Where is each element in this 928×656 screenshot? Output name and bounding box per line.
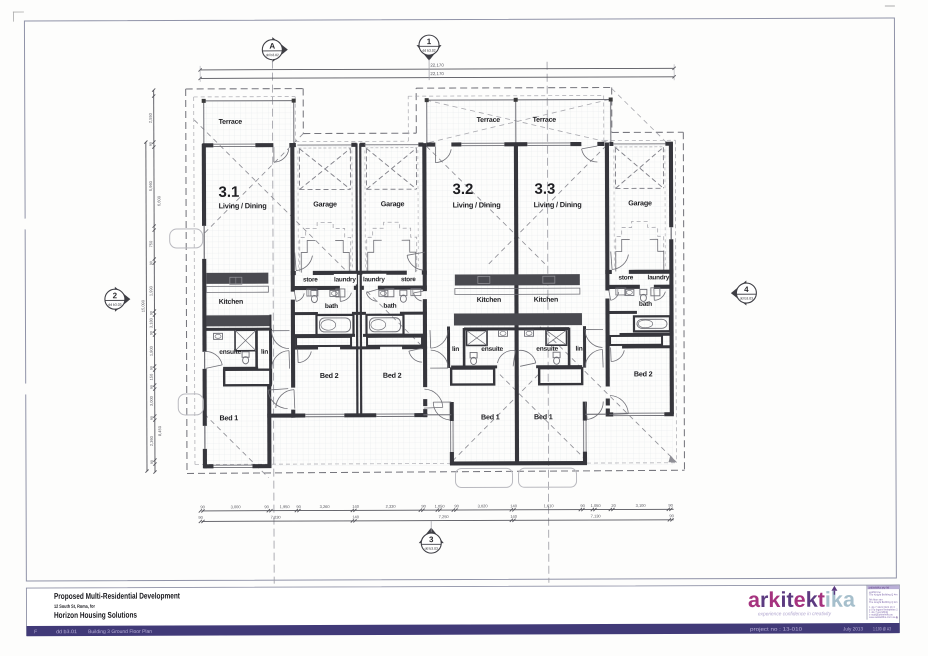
svg-text:150: 150 <box>149 373 154 380</box>
svg-text:dd b3.03: dd b3.03 <box>108 303 121 307</box>
svg-text:Bed 1: Bed 1 <box>481 412 500 421</box>
svg-text:laundry: laundry <box>334 276 356 283</box>
svg-text:lin: lin <box>576 346 583 353</box>
svg-text:Terrace: Terrace <box>477 117 501 124</box>
svg-text:140: 140 <box>352 504 359 509</box>
svg-text:www.arkitektika.com.au a: www.arkitektika.com.au a <box>869 616 898 619</box>
svg-text:store: store <box>401 276 416 283</box>
svg-text:project no : 13-010: project no : 13-010 <box>750 627 802 633</box>
svg-text:dd b3.01: dd b3.01 <box>56 629 77 635</box>
svg-text:90: 90 <box>149 261 153 265</box>
svg-text:dd b3.02: dd b3.02 <box>422 49 435 53</box>
svg-text:1,050: 1,050 <box>591 503 602 508</box>
svg-text:experience confidence in creat: experience confidence in creativity <box>758 611 831 617</box>
svg-text:90: 90 <box>580 503 585 508</box>
svg-text:A: A <box>269 42 275 51</box>
svg-text:Building 3 Ground Floor Plan: Building 3 Ground Floor Plan <box>88 629 152 635</box>
svg-text:Bed 1: Bed 1 <box>220 413 239 422</box>
svg-text:2,360: 2,360 <box>149 435 154 446</box>
svg-text:20: 20 <box>611 503 616 508</box>
svg-text:dd b3.03: dd b3.03 <box>425 547 438 551</box>
svg-text:3,260: 3,260 <box>320 504 331 509</box>
svg-text:140: 140 <box>510 503 517 508</box>
svg-text:Terrace: Terrace <box>533 117 557 124</box>
svg-text:750: 750 <box>148 240 153 247</box>
svg-text:dd b3.02: dd b3.02 <box>266 53 279 57</box>
svg-text:1,610: 1,610 <box>544 503 555 508</box>
svg-text:F: F <box>34 629 37 635</box>
svg-text:Bed 2: Bed 2 <box>634 369 653 378</box>
svg-text:90: 90 <box>421 504 426 509</box>
svg-text:1: 1 <box>427 37 432 46</box>
svg-text:90: 90 <box>264 504 269 509</box>
svg-text:15,090: 15,090 <box>140 299 145 312</box>
svg-text:Kitchen: Kitchen <box>219 299 243 306</box>
svg-text:90: 90 <box>149 311 153 315</box>
svg-text:90: 90 <box>669 513 674 518</box>
svg-text:2: 2 <box>113 291 118 300</box>
svg-text:3.1: 3.1 <box>218 184 239 201</box>
svg-text:Bed 2: Bed 2 <box>383 371 402 380</box>
svg-text:3,020: 3,020 <box>478 503 489 508</box>
svg-text:Living / Dining: Living / Dining <box>534 200 583 209</box>
svg-text:Bed 1: Bed 1 <box>534 412 553 421</box>
svg-text:90: 90 <box>150 366 154 370</box>
svg-text:140: 140 <box>510 514 517 519</box>
svg-text:bath: bath <box>383 303 396 310</box>
svg-text:90: 90 <box>668 503 673 508</box>
svg-text:July 2013: July 2013 <box>843 626 863 632</box>
svg-text:22,170: 22,170 <box>430 71 444 76</box>
svg-text:3,000: 3,000 <box>149 395 154 406</box>
svg-text:laundry: laundry <box>647 274 669 281</box>
svg-text:Bed 2: Bed 2 <box>320 371 339 380</box>
svg-text:6,600: 6,600 <box>156 195 161 206</box>
svg-text:laundry: laundry <box>363 276 385 283</box>
svg-text:2,550: 2,550 <box>148 112 153 123</box>
svg-text:arkitektika pty ltd: arkitektika pty ltd <box>868 586 889 590</box>
svg-text:7,130: 7,130 <box>591 514 602 519</box>
svg-text:1,990: 1,990 <box>148 285 153 296</box>
svg-text:90: 90 <box>149 142 153 146</box>
svg-text:Kitchen: Kitchen <box>534 297 558 304</box>
svg-text:5,960: 5,960 <box>148 180 153 191</box>
svg-text:90: 90 <box>150 416 154 420</box>
svg-text:7,250: 7,250 <box>439 514 450 519</box>
svg-text:1:100 @ A3: 1:100 @ A3 <box>873 626 891 632</box>
svg-text:3,100: 3,100 <box>636 503 647 508</box>
svg-text:7,230: 7,230 <box>271 515 282 520</box>
svg-text:store: store <box>303 277 318 284</box>
svg-text:Terrace: Terrace <box>219 119 243 126</box>
svg-text:90: 90 <box>296 504 301 509</box>
svg-text:bath: bath <box>639 301 652 308</box>
svg-text:Garage: Garage <box>628 198 652 207</box>
svg-text:lin: lin <box>261 349 268 356</box>
svg-text:3: 3 <box>429 535 434 544</box>
svg-text:1,950: 1,950 <box>280 504 291 509</box>
svg-text:90: 90 <box>150 331 154 335</box>
svg-text:dd b3.03: dd b3.03 <box>740 296 753 300</box>
svg-text:Horizon Housing Solutions: Horizon Housing Solutions <box>54 610 137 620</box>
svg-text:Garage: Garage <box>313 199 337 208</box>
svg-text:Garage: Garage <box>381 199 405 208</box>
svg-text:3,000: 3,000 <box>231 504 242 509</box>
svg-text:lin: lin <box>452 346 459 353</box>
svg-text:90: 90 <box>198 515 203 520</box>
svg-text:arkitektika: arkitektika <box>748 588 856 612</box>
svg-text:22,170: 22,170 <box>430 63 444 68</box>
svg-text:1,800: 1,800 <box>149 345 154 356</box>
svg-text:2,330: 2,330 <box>386 504 397 509</box>
svg-text:ensuite: ensuite <box>481 346 503 353</box>
svg-text:ensuite: ensuite <box>219 349 241 356</box>
svg-text:The Knight Building Q 4m: The Knight Building Q 4m <box>869 593 898 596</box>
svg-text:3.3: 3.3 <box>534 181 555 198</box>
svg-text:The Knight Building Q 4m: The Knight Building Q 4m <box>869 601 898 604</box>
svg-text:ensuite: ensuite <box>536 346 558 353</box>
svg-text:90: 90 <box>150 460 154 464</box>
svg-text:1,050: 1,050 <box>435 504 446 509</box>
svg-text:store: store <box>618 274 633 281</box>
svg-text:140: 140 <box>352 514 359 519</box>
svg-text:90: 90 <box>200 504 205 509</box>
svg-text:Kitchen: Kitchen <box>477 297 501 304</box>
svg-text:Living / Dining: Living / Dining <box>453 200 502 209</box>
svg-text:8,450: 8,450 <box>157 425 162 436</box>
svg-text:bath: bath <box>325 303 338 310</box>
svg-text:4: 4 <box>744 285 749 294</box>
svg-text:90: 90 <box>150 385 154 389</box>
svg-text:3.2: 3.2 <box>452 181 473 198</box>
svg-text:3,180: 3,180 <box>148 317 153 328</box>
svg-text:Proposed Multi-Residential Dev: Proposed Multi-Residential Development <box>54 590 180 600</box>
svg-text:Living / Dining: Living / Dining <box>219 201 268 210</box>
svg-text:90: 90 <box>454 504 459 509</box>
